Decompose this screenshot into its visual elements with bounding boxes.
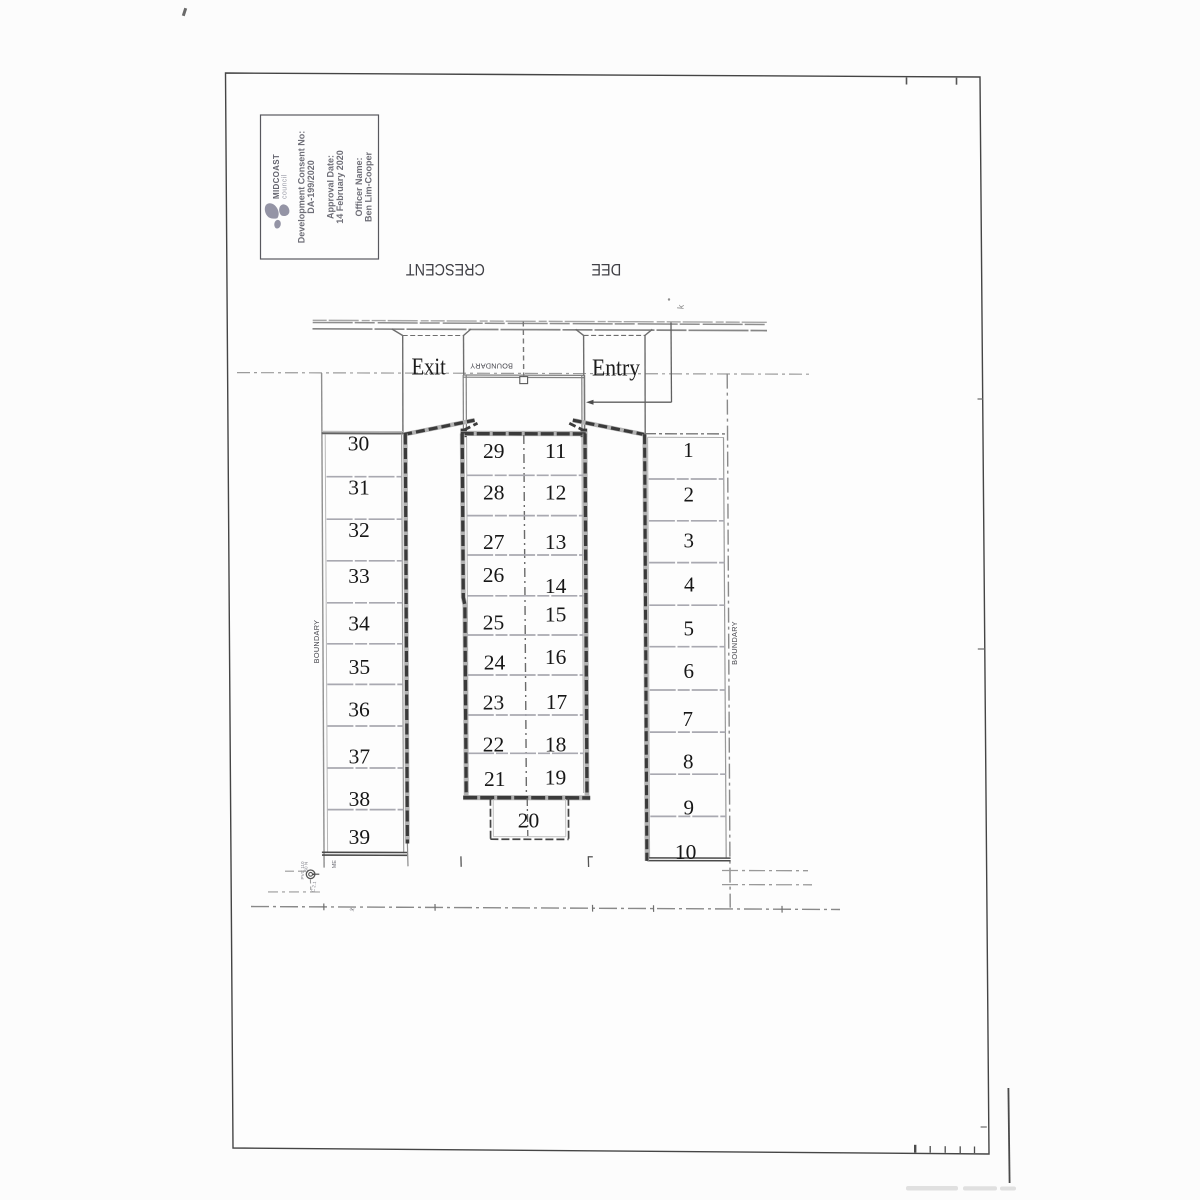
svg-text:25: 25 bbox=[483, 611, 505, 635]
svg-text:26: 26 bbox=[483, 563, 505, 587]
svg-text:17: 17 bbox=[546, 690, 568, 714]
svg-text:9: 9 bbox=[684, 795, 695, 819]
svg-text:8: 8 bbox=[683, 750, 694, 774]
svg-text:4: 4 bbox=[684, 572, 695, 596]
svg-text:11: 11 bbox=[545, 439, 567, 463]
svg-text:23: 23 bbox=[483, 691, 505, 715]
svg-text:38: 38 bbox=[349, 787, 371, 811]
svg-text:36: 36 bbox=[348, 698, 370, 722]
svg-text:Entry: Entry bbox=[592, 355, 641, 382]
svg-text:27: 27 bbox=[483, 530, 505, 554]
svg-text:14 February 2020: 14 February 2020 bbox=[335, 150, 345, 224]
svg-text:18: 18 bbox=[545, 732, 567, 756]
svg-text:Ben Lim-Cooper: Ben Lim-Cooper bbox=[364, 152, 374, 222]
svg-text:14: 14 bbox=[545, 574, 567, 598]
svg-text:32: 32 bbox=[348, 518, 370, 542]
svg-text:12: 12 bbox=[545, 480, 567, 504]
svg-text:16: 16 bbox=[545, 645, 567, 669]
svg-text:33: 33 bbox=[348, 564, 370, 588]
svg-text:Approval Date:: Approval Date: bbox=[326, 155, 336, 219]
svg-text:BOUNDARY: BOUNDARY bbox=[470, 362, 513, 371]
svg-text:Officer Name:: Officer Name: bbox=[354, 157, 364, 216]
svg-text:BOUNDARY: BOUNDARY bbox=[730, 621, 739, 665]
svg-text:20: 20 bbox=[518, 808, 540, 832]
svg-text:DEE: DEE bbox=[591, 260, 621, 279]
svg-text:22: 22 bbox=[483, 732, 505, 756]
svg-text:21: 21 bbox=[484, 767, 506, 791]
svg-text:ME: ME bbox=[332, 860, 338, 869]
svg-text:CRESCENT: CRESCENT bbox=[406, 260, 485, 279]
svg-text:34: 34 bbox=[348, 611, 370, 635]
svg-text:15: 15 bbox=[545, 602, 567, 626]
svg-text:37: 37 bbox=[349, 745, 371, 769]
svg-text:10: 10 bbox=[675, 840, 697, 864]
svg-text:28: 28 bbox=[483, 480, 505, 504]
svg-text:19: 19 bbox=[545, 766, 567, 790]
svg-text:DA-199/2020: DA-199/2020 bbox=[306, 160, 316, 214]
svg-text:5: 5 bbox=[684, 616, 695, 640]
svg-text:39: 39 bbox=[349, 825, 371, 849]
svg-text:2: 2 bbox=[684, 483, 695, 507]
svg-text:31: 31 bbox=[348, 476, 370, 500]
svg-text:PVC 110: PVC 110 bbox=[300, 861, 305, 879]
svg-text:29: 29 bbox=[483, 439, 505, 463]
svg-text:BOUNDARY: BOUNDARY bbox=[312, 620, 321, 664]
svg-text:council: council bbox=[282, 174, 289, 199]
svg-text:6: 6 bbox=[684, 659, 695, 683]
svg-text:13: 13 bbox=[545, 530, 567, 554]
svg-text:30: 30 bbox=[348, 431, 370, 455]
svg-text:MIDCOAST: MIDCOAST bbox=[272, 154, 281, 199]
svg-text:1: 1 bbox=[683, 438, 694, 462]
svg-text:7: 7 bbox=[682, 707, 693, 731]
svg-text:24: 24 bbox=[484, 651, 506, 675]
svg-text:3: 3 bbox=[684, 528, 695, 552]
svg-text:35: 35 bbox=[349, 655, 371, 679]
svg-text:Exit: Exit bbox=[411, 353, 446, 380]
